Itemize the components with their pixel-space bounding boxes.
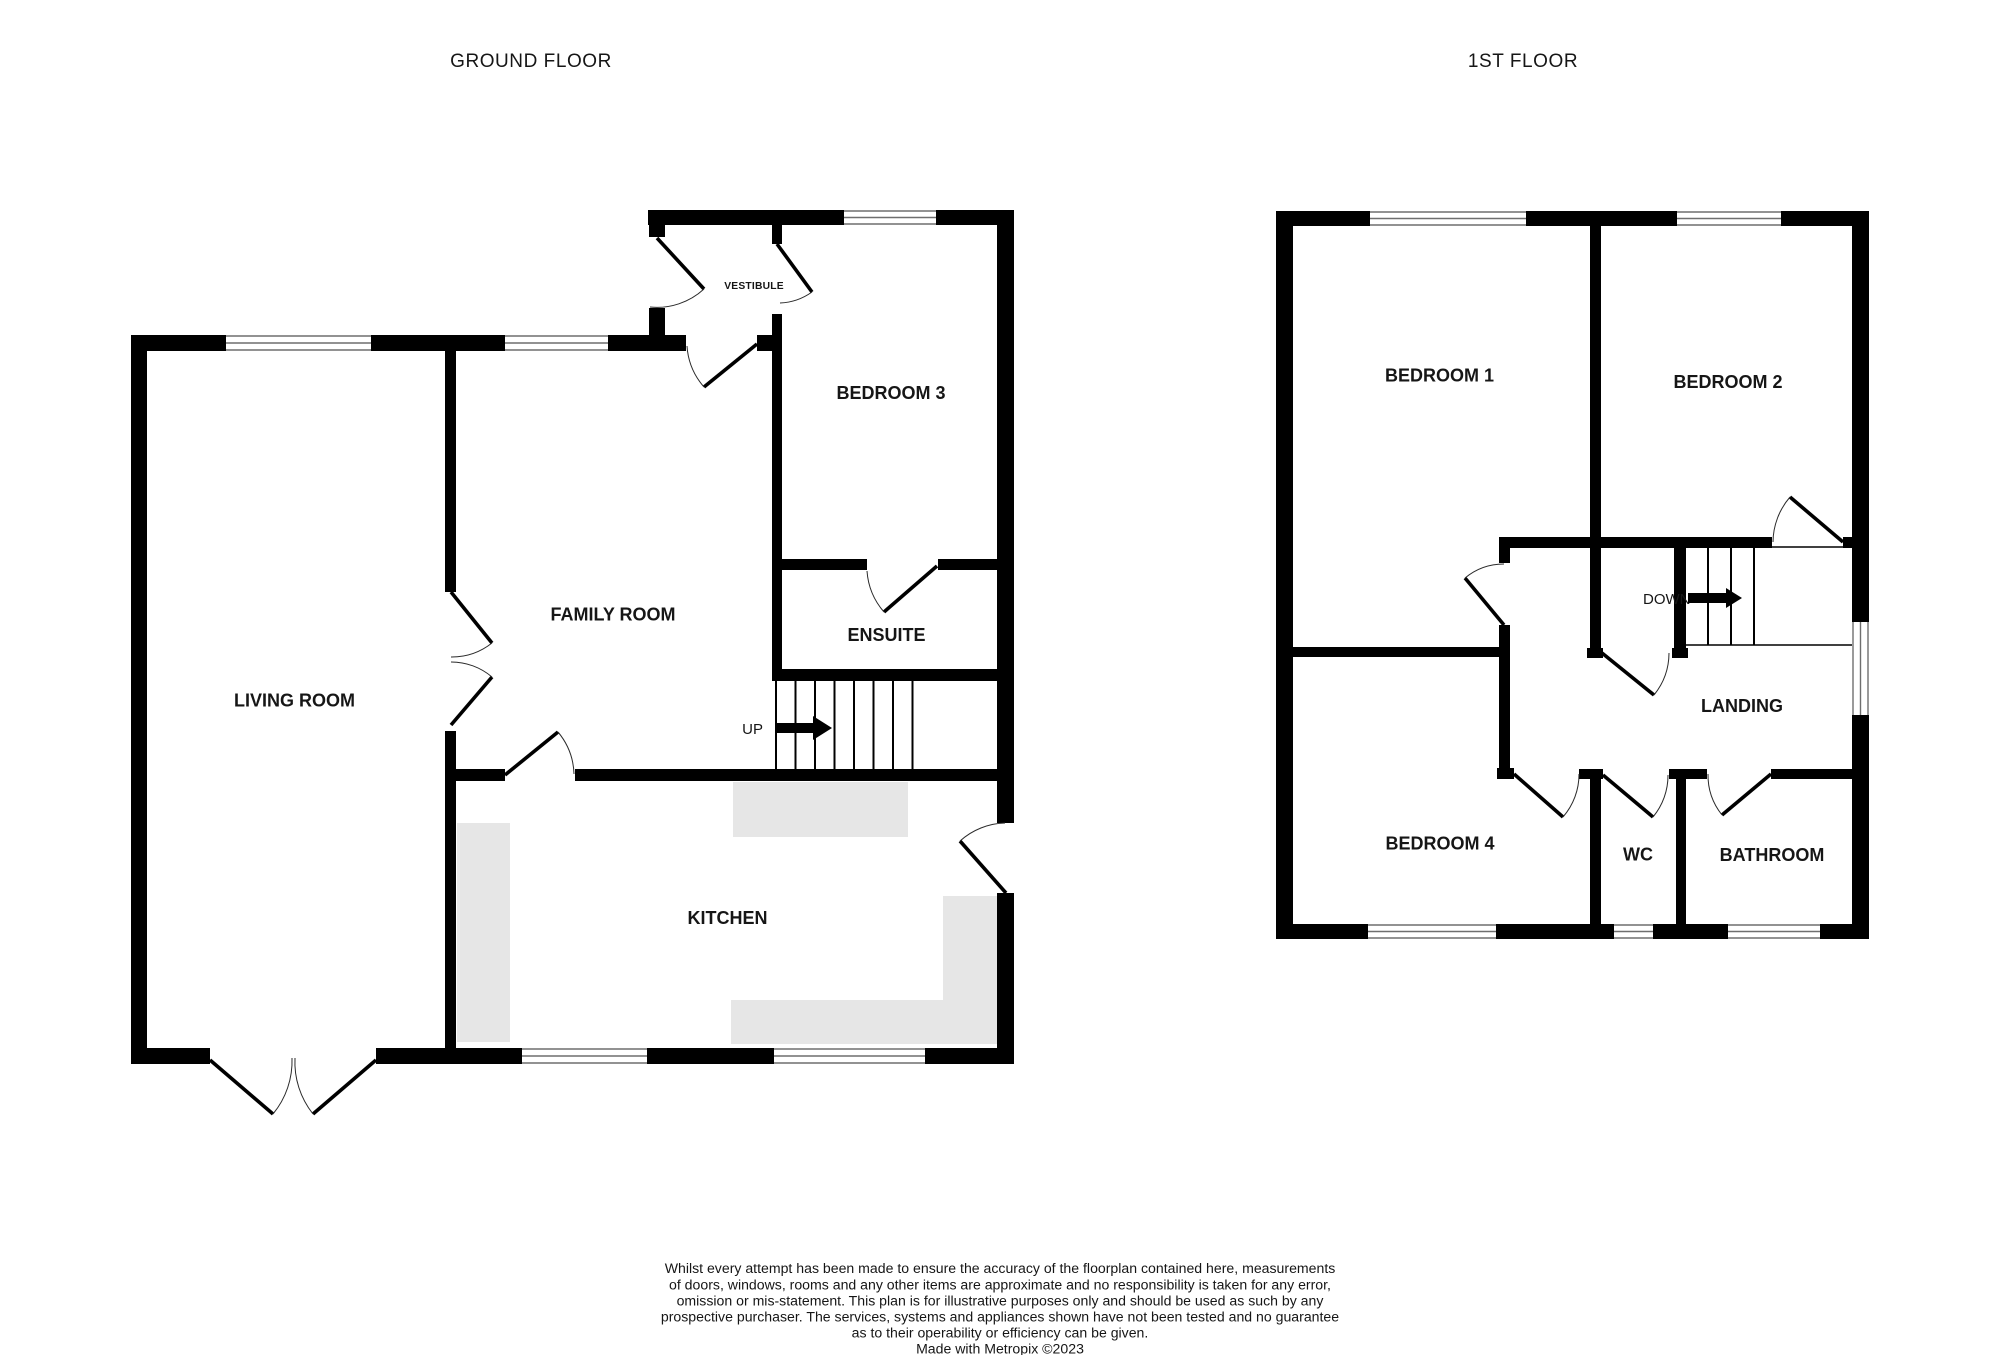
svg-text:Whilst every attempt has been: Whilst every attempt has been made to en… (665, 1260, 1336, 1276)
svg-text:FAMILY ROOM: FAMILY ROOM (550, 605, 675, 625)
svg-text:BEDROOM 4: BEDROOM 4 (1385, 834, 1494, 854)
svg-text:of doors, windows, rooms and a: of doors, windows, rooms and any other i… (669, 1276, 1331, 1292)
svg-text:GROUND FLOOR: GROUND FLOOR (450, 51, 612, 72)
svg-text:BEDROOM 3: BEDROOM 3 (836, 383, 945, 403)
svg-text:omission or mis-statement. Thi: omission or mis-statement. This plan is … (677, 1292, 1325, 1308)
svg-text:BEDROOM 1: BEDROOM 1 (1385, 366, 1494, 386)
svg-text:WC: WC (1623, 845, 1653, 865)
svg-text:Made with Metropix ©2023: Made with Metropix ©2023 (916, 1341, 1084, 1355)
svg-text:as to their operability or eff: as to their operability or efficiency ca… (852, 1325, 1149, 1341)
svg-text:prospective purchaser. The ser: prospective purchaser. The services, sys… (661, 1309, 1339, 1325)
svg-text:ENSUITE: ENSUITE (847, 625, 925, 645)
svg-text:BATHROOM: BATHROOM (1720, 845, 1825, 865)
svg-text:BEDROOM 2: BEDROOM 2 (1673, 372, 1782, 392)
svg-text:VESTIBULE: VESTIBULE (724, 281, 784, 292)
svg-text:1ST FLOOR: 1ST FLOOR (1468, 51, 1578, 72)
svg-text:DOWN: DOWN (1643, 591, 1691, 608)
svg-text:LANDING: LANDING (1701, 696, 1783, 716)
svg-text:KITCHEN: KITCHEN (688, 908, 768, 928)
svg-text:UP: UP (742, 721, 763, 738)
svg-text:LIVING ROOM: LIVING ROOM (234, 691, 355, 711)
